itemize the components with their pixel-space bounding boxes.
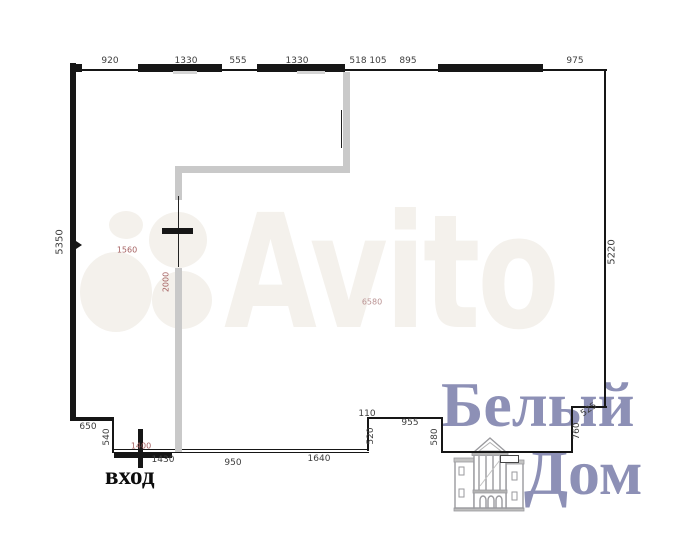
- dimension-labels-layer: 9201330555133051810589597553505220650540…: [0, 0, 681, 540]
- dimension-label-1330: 1330: [286, 56, 309, 66]
- dimension-label-518: 518: [349, 56, 366, 66]
- dimension-label-5220: 5220: [607, 239, 618, 264]
- dimension-label-1330: 1330: [175, 56, 198, 66]
- dimension-label-950: 950: [224, 458, 241, 468]
- dimension-label-1560: 1560: [117, 246, 137, 255]
- dimension-label-2000: 2000: [162, 272, 171, 292]
- dimension-label-760: 760: [572, 422, 582, 439]
- dimension-label-955: 955: [401, 418, 418, 428]
- dimension-label-975: 975: [566, 56, 583, 66]
- entrance-label: вход: [105, 464, 154, 489]
- dimension-label-650: 650: [79, 422, 96, 432]
- dimension-label-540: 540: [102, 428, 112, 445]
- dimension-label-525: 525: [579, 401, 599, 419]
- floorplan-image: Avito Белый Дом: [0, 0, 681, 540]
- dimension-label-520: 520: [366, 427, 376, 444]
- dimension-label-555: 555: [229, 56, 246, 66]
- dimension-label-895: 895: [399, 56, 416, 66]
- dimension-label-580: 580: [430, 428, 440, 445]
- dimension-label-5350: 5350: [55, 229, 66, 254]
- dimension-label-105: 105: [369, 56, 386, 66]
- dimension-label-6580: 6580: [362, 298, 382, 307]
- dimension-label-1400: 1400: [131, 442, 151, 451]
- dimension-label-920: 920: [101, 56, 118, 66]
- dimension-label-110: 110: [358, 409, 375, 419]
- dimension-label-1430: 1430: [152, 455, 175, 465]
- dimension-label-1640: 1640: [308, 454, 331, 464]
